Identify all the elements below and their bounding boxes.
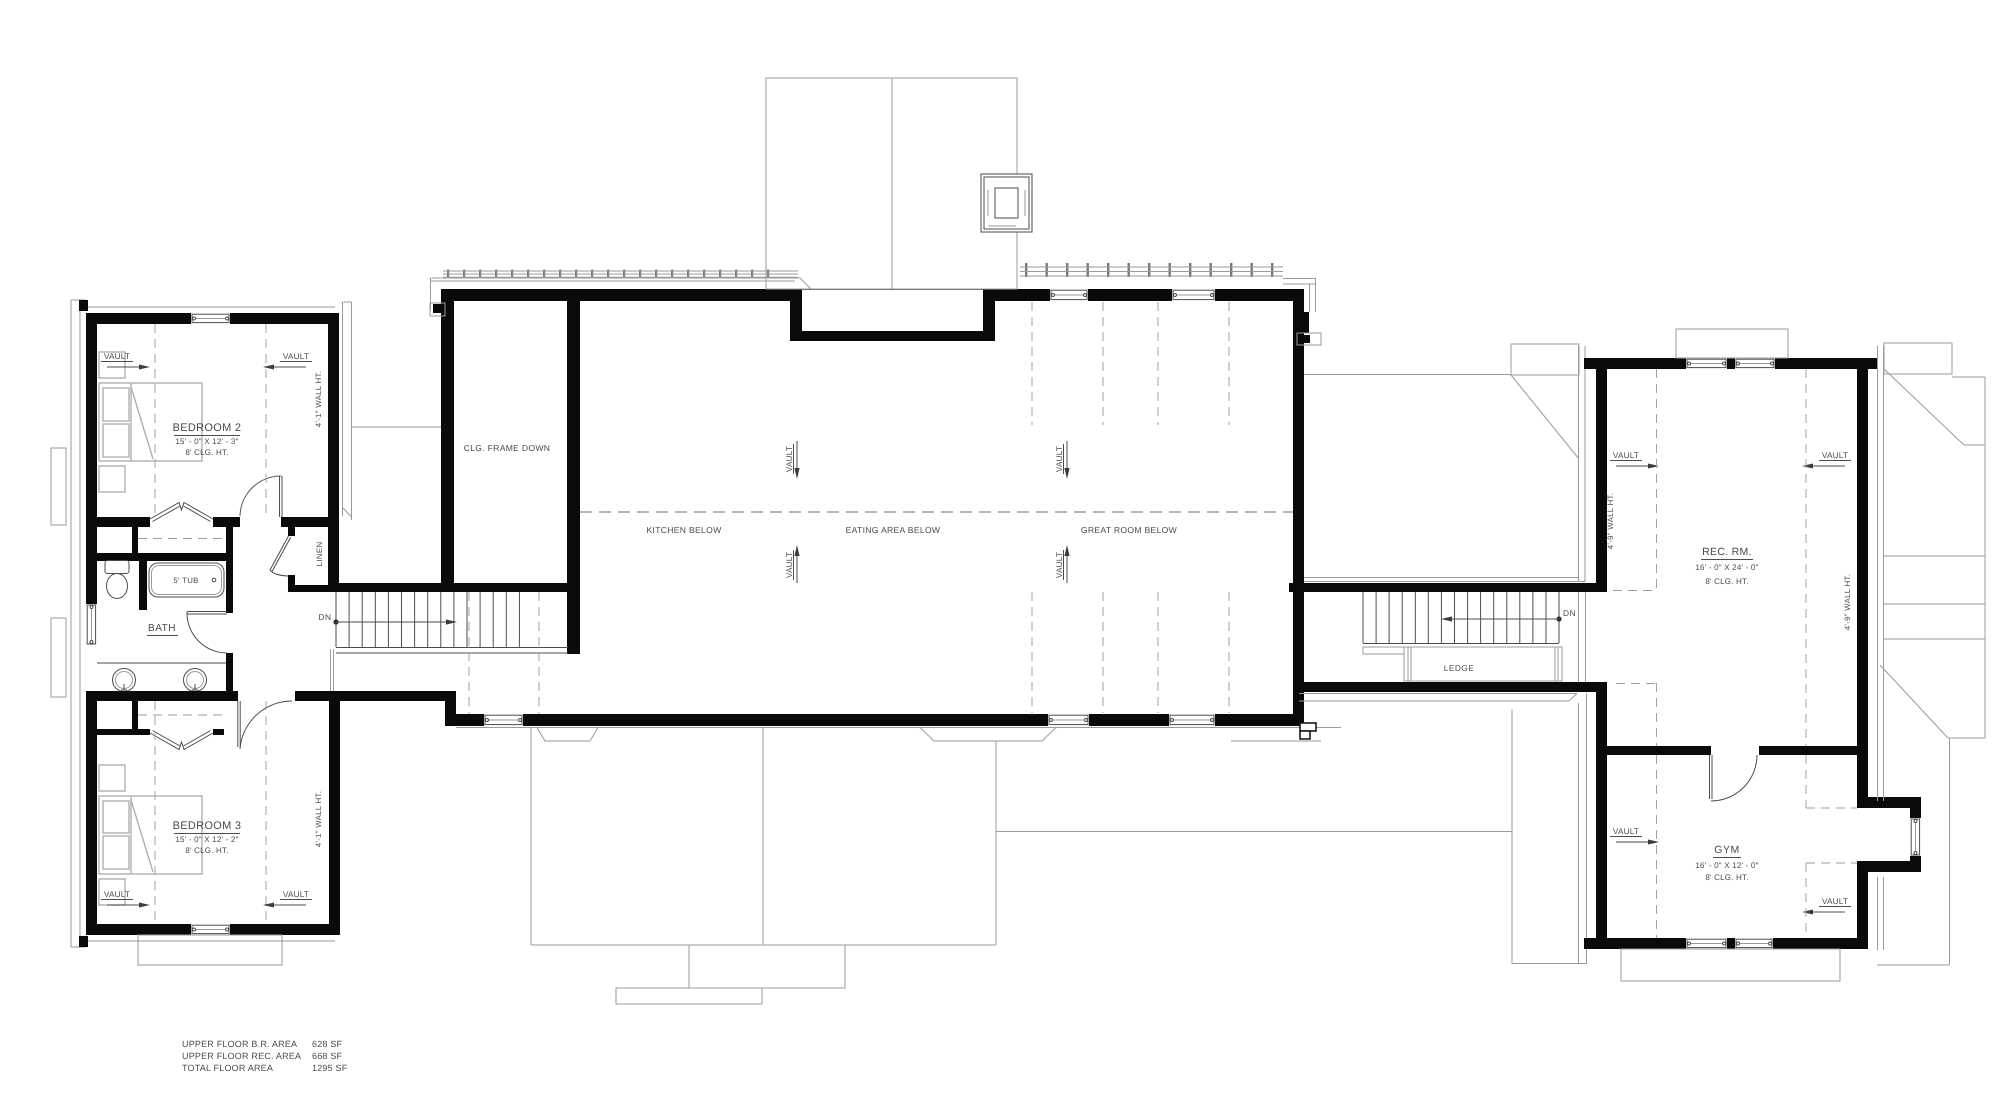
svg-text:VAULT: VAULT <box>1822 451 1848 460</box>
svg-text:UPPER FLOOR B.R. AREA: UPPER FLOOR B.R. AREA <box>182 1039 297 1049</box>
svg-text:VAULT: VAULT <box>1055 446 1064 472</box>
svg-text:4'-1" WALL HT.: 4'-1" WALL HT. <box>314 371 323 427</box>
svg-text:TOTAL FLOOR AREA: TOTAL FLOOR AREA <box>182 1063 273 1073</box>
svg-text:LINEN: LINEN <box>315 542 324 567</box>
svg-text:GREAT ROOM BELOW: GREAT ROOM BELOW <box>1081 525 1178 535</box>
svg-text:8' CLG. HT.: 8' CLG. HT. <box>1705 577 1748 586</box>
svg-text:628 SF: 628 SF <box>312 1039 343 1049</box>
svg-text:BEDROOM 2: BEDROOM 2 <box>173 422 242 434</box>
svg-text:16' - 0" X 24' - 0": 16' - 0" X 24' - 0" <box>1695 563 1758 572</box>
svg-text:KITCHEN BELOW: KITCHEN BELOW <box>646 525 722 535</box>
svg-text:REC. RM.: REC. RM. <box>1702 546 1752 558</box>
svg-text:8' CLG. HT.: 8' CLG. HT. <box>1705 873 1748 882</box>
svg-text:BATH: BATH <box>148 623 176 634</box>
svg-text:VAULT: VAULT <box>283 352 309 361</box>
svg-text:4'-1" WALL HT.: 4'-1" WALL HT. <box>314 791 323 847</box>
svg-text:VAULT: VAULT <box>1613 451 1639 460</box>
svg-text:16' - 0" X 12' - 0": 16' - 0" X 12' - 0" <box>1695 861 1758 870</box>
svg-text:15' - 0" X 12' - 2": 15' - 0" X 12' - 2" <box>175 835 238 844</box>
svg-text:VAULT: VAULT <box>785 446 794 472</box>
svg-text:1295 SF: 1295 SF <box>312 1063 348 1073</box>
svg-text:VAULT: VAULT <box>104 352 130 361</box>
svg-text:VAULT: VAULT <box>104 890 130 899</box>
svg-text:VAULT: VAULT <box>1613 827 1639 836</box>
svg-text:VAULT: VAULT <box>283 890 309 899</box>
svg-text:5' TUB: 5' TUB <box>173 576 198 585</box>
svg-text:4'-9" WALL HT.: 4'-9" WALL HT. <box>1606 493 1615 549</box>
svg-text:VAULT: VAULT <box>1055 552 1064 578</box>
svg-text:EATING AREA BELOW: EATING AREA BELOW <box>846 525 941 535</box>
svg-text:8' CLG. HT.: 8' CLG. HT. <box>185 846 228 855</box>
svg-text:668 SF: 668 SF <box>312 1051 343 1061</box>
svg-text:8' CLG. HT.: 8' CLG. HT. <box>185 448 228 457</box>
svg-text:VAULT: VAULT <box>785 552 794 578</box>
svg-text:DN: DN <box>1563 608 1576 618</box>
svg-text:LEDGE: LEDGE <box>1444 663 1474 673</box>
svg-text:GYM: GYM <box>1714 844 1739 856</box>
svg-text:BEDROOM 3: BEDROOM 3 <box>173 820 242 832</box>
svg-text:UPPER FLOOR REC. AREA: UPPER FLOOR REC. AREA <box>182 1051 301 1061</box>
svg-text:4'-9" WALL HT.: 4'-9" WALL HT. <box>1843 574 1852 630</box>
svg-text:CLG. FRAME DOWN: CLG. FRAME DOWN <box>464 443 551 453</box>
svg-text:15' - 0" X 12' - 3": 15' - 0" X 12' - 3" <box>175 437 238 446</box>
svg-text:VAULT: VAULT <box>1822 897 1848 906</box>
svg-text:DN: DN <box>319 612 332 622</box>
